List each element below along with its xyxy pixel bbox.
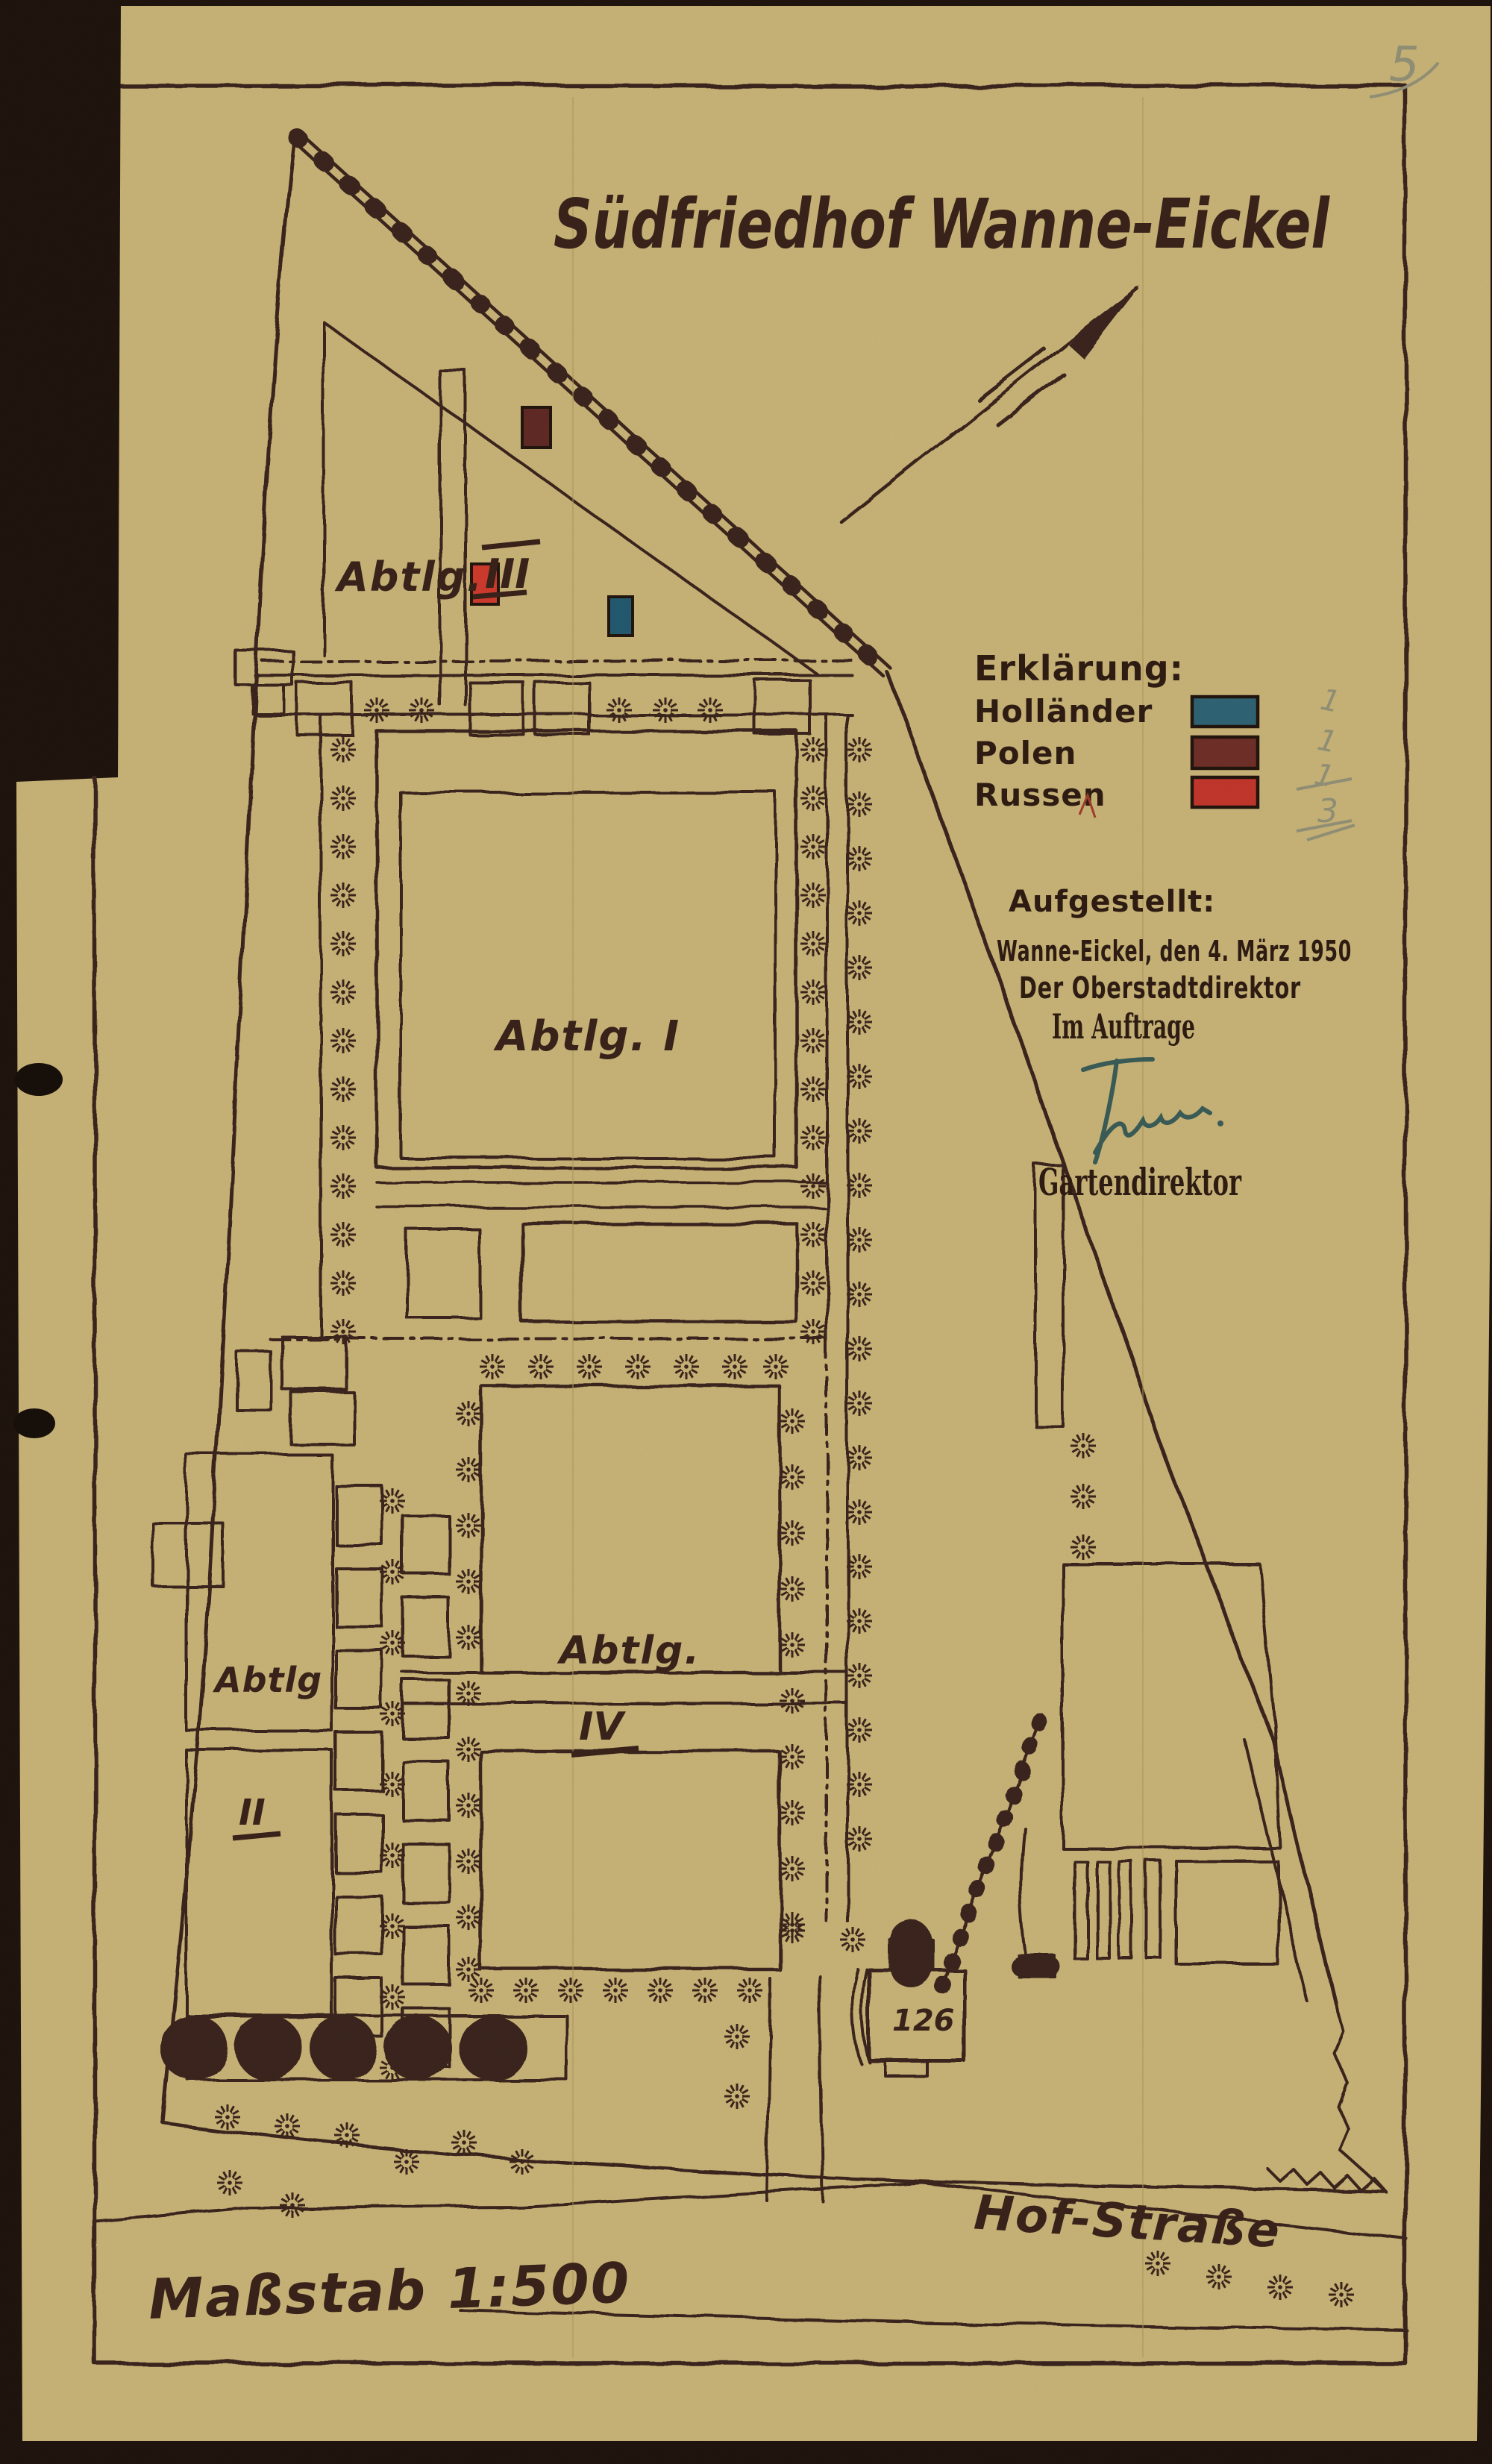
attribution-signer-title: Gartendirektor bbox=[1038, 1160, 1241, 1204]
paper-grain bbox=[0, 0, 1492, 2464]
section-two-label: Abtlg bbox=[213, 1660, 322, 1700]
map-title: Südfriedhof Wanne-Eickel bbox=[554, 184, 1330, 264]
building-number-label: 126 bbox=[892, 2004, 955, 2038]
legend-label-russen: Russen bbox=[974, 777, 1106, 813]
section-three-label: Abtlg. bbox=[334, 554, 483, 601]
legend-label-hollaender: Holländer bbox=[974, 693, 1153, 730]
legend-title: Erklärung: bbox=[974, 648, 1184, 689]
section-two-numeral: II bbox=[239, 1792, 266, 1834]
attribution-office: Der Oberstadtdirektor bbox=[1019, 971, 1301, 1006]
attribution-by-order: Im Auftrage bbox=[1052, 1006, 1195, 1047]
section-four-label: Abtlg. bbox=[557, 1628, 700, 1673]
attribution-label: Aufgestellt: bbox=[1009, 885, 1215, 919]
attribution-place-date: Wanne-Eickel, den 4. März 1950 bbox=[997, 935, 1352, 968]
page-number: 5 bbox=[1389, 37, 1420, 93]
section-one-label: Abtlg. I bbox=[493, 1012, 680, 1061]
scanned-page: 5 Südfriedhof Wanne-Eickel Abtlg. III Ab… bbox=[0, 0, 1492, 2464]
signature-dot bbox=[1217, 1120, 1223, 1126]
legend-label-polen: Polen bbox=[974, 735, 1076, 771]
section-four-numeral: IV bbox=[579, 1705, 626, 1749]
